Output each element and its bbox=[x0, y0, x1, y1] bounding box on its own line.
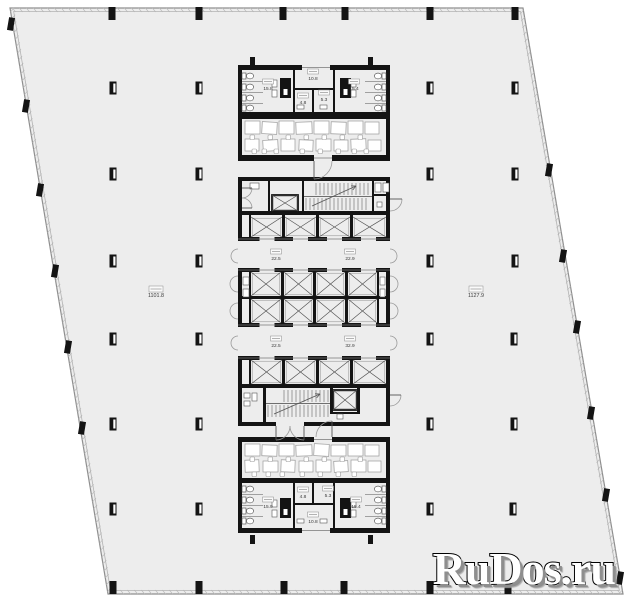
desk-icon bbox=[348, 121, 363, 134]
core-wall bbox=[238, 388, 242, 426]
toilet-icon bbox=[246, 518, 253, 524]
area-value: 32.9 bbox=[345, 343, 355, 349]
core-wall bbox=[386, 483, 390, 533]
area-value: 1101.8 bbox=[148, 293, 164, 299]
core-wall bbox=[350, 360, 353, 384]
desk-icon bbox=[296, 445, 312, 457]
toilet-icon bbox=[242, 518, 246, 524]
column bbox=[109, 7, 116, 20]
chair-icon bbox=[250, 135, 255, 140]
toilet-icon bbox=[242, 497, 246, 503]
fixture-icon bbox=[272, 90, 277, 97]
fixture-icon bbox=[252, 393, 257, 401]
chair-icon bbox=[336, 472, 341, 477]
desk-icon bbox=[296, 122, 312, 135]
core-wall bbox=[316, 215, 319, 237]
chair-icon bbox=[280, 472, 285, 477]
toilet-icon bbox=[382, 73, 386, 79]
core-wall bbox=[350, 215, 353, 237]
area-value: 22.9 bbox=[345, 256, 355, 262]
chair-icon bbox=[318, 149, 323, 154]
toilet-icon bbox=[246, 95, 253, 101]
toilet-icon bbox=[242, 508, 246, 514]
core-wall bbox=[293, 70, 295, 112]
desk-icon bbox=[245, 444, 260, 456]
core-wall bbox=[345, 272, 348, 323]
core-wall bbox=[238, 119, 242, 161]
chair-icon bbox=[358, 457, 363, 462]
core-wall bbox=[249, 360, 251, 384]
chair-icon bbox=[352, 472, 357, 477]
column bbox=[196, 581, 203, 594]
toilet-icon bbox=[242, 84, 246, 90]
column bbox=[110, 581, 117, 594]
column bbox=[196, 7, 203, 20]
core-wall bbox=[238, 384, 390, 388]
core-wall bbox=[302, 181, 304, 211]
toilet-icon bbox=[246, 105, 253, 111]
core-wall bbox=[295, 503, 333, 505]
desk-icon bbox=[331, 122, 346, 135]
fixture-icon bbox=[243, 289, 249, 297]
fixture-icon bbox=[272, 510, 277, 517]
area-value: 10.8 bbox=[308, 519, 318, 525]
core-wall bbox=[313, 272, 316, 323]
core-wall bbox=[312, 483, 314, 503]
fixture-icon bbox=[380, 277, 385, 285]
desk-icon bbox=[279, 444, 294, 456]
floor-plan-page: { "watermark": { "text": "RuDos.ru" }, "… bbox=[0, 0, 629, 600]
desk-icon bbox=[331, 445, 346, 456]
column bbox=[281, 581, 288, 594]
desk-icon bbox=[368, 461, 381, 472]
chair-icon bbox=[286, 457, 291, 462]
core-wall bbox=[238, 483, 242, 533]
toilet-icon bbox=[382, 518, 386, 524]
core-wall bbox=[238, 65, 242, 119]
toilet-icon bbox=[374, 497, 381, 503]
desk-icon bbox=[314, 444, 330, 457]
column bbox=[280, 7, 287, 20]
column bbox=[341, 581, 348, 594]
chair-icon bbox=[322, 135, 327, 140]
chair-icon bbox=[364, 149, 369, 154]
core-wall bbox=[263, 388, 266, 422]
toilet-icon bbox=[246, 497, 253, 503]
toilet-icon bbox=[242, 73, 246, 79]
column bbox=[342, 7, 349, 20]
toilet-icon bbox=[382, 95, 386, 101]
core-wall bbox=[330, 528, 390, 533]
core-wall bbox=[386, 388, 390, 426]
core-wall bbox=[238, 65, 302, 70]
core-wall bbox=[238, 356, 242, 388]
area-value: 22.5 bbox=[271, 343, 281, 349]
area-value: 15.4 bbox=[351, 504, 361, 510]
core-wall bbox=[281, 272, 284, 323]
area-value: 4.8 bbox=[300, 494, 307, 500]
desk-icon bbox=[365, 445, 379, 456]
area-label: 1127.9 bbox=[468, 286, 484, 299]
desk-icon bbox=[245, 121, 260, 134]
chair-icon bbox=[352, 149, 357, 154]
column bbox=[427, 7, 434, 20]
core-wall bbox=[386, 442, 390, 478]
fixture-icon bbox=[380, 289, 385, 297]
area-value: 15.9 bbox=[263, 504, 273, 510]
chair-icon bbox=[268, 135, 273, 140]
toilet-icon bbox=[246, 508, 253, 514]
chair-icon bbox=[252, 472, 257, 477]
floor-plan-svg: 10.815.84.85.315.422.522.922.532.91101.8… bbox=[0, 0, 629, 600]
chair-icon bbox=[274, 149, 279, 154]
core-wall bbox=[238, 211, 390, 215]
desk-icon bbox=[263, 461, 278, 472]
desk-icon bbox=[314, 121, 329, 134]
chair-icon bbox=[318, 472, 323, 477]
toilet-icon bbox=[246, 486, 253, 492]
fixture-icon bbox=[351, 510, 356, 517]
chair-icon bbox=[300, 472, 305, 477]
chair-icon bbox=[304, 457, 309, 462]
core-wall bbox=[238, 112, 390, 119]
core-wall bbox=[330, 412, 360, 414]
core-wall bbox=[238, 422, 276, 426]
area-value: 5.3 bbox=[321, 97, 328, 103]
desk-icon bbox=[262, 122, 278, 135]
desk-icon bbox=[351, 460, 366, 472]
chair-icon bbox=[252, 149, 257, 154]
toilet-icon bbox=[246, 73, 253, 79]
fixture-icon bbox=[383, 183, 389, 192]
toilet-icon bbox=[382, 497, 386, 503]
toilet-icon bbox=[374, 486, 381, 492]
core-wall bbox=[316, 360, 319, 384]
slab-outline bbox=[10, 8, 623, 594]
core-wall bbox=[238, 528, 302, 533]
core-wall bbox=[249, 272, 251, 323]
core-wall bbox=[333, 70, 335, 112]
fixture-icon bbox=[320, 105, 327, 109]
fixture-icon bbox=[244, 393, 250, 398]
fixture-icon bbox=[377, 202, 382, 207]
core-wall bbox=[330, 65, 390, 70]
core-wall bbox=[386, 268, 390, 327]
desk-icon bbox=[348, 444, 363, 456]
toilet-icon bbox=[242, 105, 246, 111]
core-wall bbox=[250, 535, 255, 544]
area-label: 1101.8 bbox=[148, 286, 164, 299]
core-wall bbox=[268, 181, 270, 211]
fixture-icon bbox=[375, 183, 381, 192]
core-wall bbox=[250, 57, 255, 66]
toilet-icon bbox=[374, 73, 381, 79]
core-wall bbox=[304, 422, 390, 426]
chair-icon bbox=[286, 135, 291, 140]
floor-plan-canvas: 10.815.84.85.315.422.522.922.532.91101.8… bbox=[0, 0, 629, 600]
fixture-icon bbox=[297, 519, 304, 523]
chair-icon bbox=[322, 457, 327, 462]
core-wall bbox=[386, 65, 390, 119]
core-wall bbox=[386, 119, 390, 161]
area-value: 22.5 bbox=[271, 256, 281, 262]
toilet-icon bbox=[382, 486, 386, 492]
toilet-icon bbox=[382, 105, 386, 111]
toilet-icon bbox=[382, 84, 386, 90]
toilet-icon bbox=[246, 84, 253, 90]
chair-icon bbox=[250, 457, 255, 462]
core-wall bbox=[249, 215, 251, 237]
core-wall bbox=[312, 90, 314, 112]
core-wall bbox=[238, 478, 390, 483]
chair-icon bbox=[340, 457, 345, 462]
chair-icon bbox=[336, 149, 341, 154]
desk-icon bbox=[262, 445, 277, 457]
toilet-icon bbox=[374, 518, 381, 524]
area-value: 15.4 bbox=[349, 86, 359, 92]
chair-icon bbox=[300, 149, 305, 154]
desk-icon bbox=[365, 122, 379, 134]
chair-icon bbox=[268, 457, 273, 462]
desk-icon bbox=[299, 461, 313, 472]
fixture-icon bbox=[320, 519, 327, 523]
core-wall bbox=[282, 360, 285, 384]
toilet-icon bbox=[382, 508, 386, 514]
toilet-icon bbox=[374, 508, 381, 514]
area-value: 5.3 bbox=[325, 493, 332, 499]
core-wall bbox=[238, 442, 242, 478]
core-wall bbox=[332, 437, 390, 442]
toilet-icon bbox=[242, 95, 246, 101]
watermark: RuDos.ru bbox=[433, 546, 615, 592]
fixture-icon bbox=[244, 401, 250, 406]
fixture-icon bbox=[337, 414, 343, 419]
core-wall bbox=[368, 535, 373, 544]
chair-icon bbox=[304, 135, 309, 140]
core-wall bbox=[386, 356, 390, 388]
core-wall bbox=[368, 57, 373, 66]
column bbox=[512, 7, 519, 20]
toilet-icon bbox=[374, 84, 381, 90]
desk-icon bbox=[279, 121, 294, 134]
core-wall bbox=[238, 181, 242, 215]
chair-icon bbox=[358, 135, 363, 140]
core-wall bbox=[295, 88, 333, 90]
chair-icon bbox=[262, 149, 267, 154]
chair-icon bbox=[266, 472, 271, 477]
desk-icon bbox=[281, 139, 295, 151]
core-wall bbox=[282, 215, 285, 237]
desk-icon bbox=[334, 461, 349, 473]
area-value: 10.8 bbox=[308, 76, 318, 82]
area-value: 15.8 bbox=[263, 86, 273, 92]
core-wall bbox=[238, 155, 314, 161]
chair-icon bbox=[340, 135, 345, 140]
area-value: 1127.9 bbox=[468, 293, 484, 299]
core-wall bbox=[377, 272, 379, 323]
core-wall bbox=[238, 268, 242, 327]
toilet-icon bbox=[374, 95, 381, 101]
core-wall bbox=[332, 155, 390, 161]
floor-outline-layer bbox=[10, 8, 623, 594]
toilet-icon bbox=[374, 105, 381, 111]
area-value: 4.8 bbox=[300, 100, 307, 106]
toilet-icon bbox=[242, 486, 246, 492]
fixture-icon bbox=[243, 277, 249, 285]
core-wall bbox=[293, 483, 295, 528]
core-wall bbox=[372, 194, 390, 196]
desk-icon bbox=[368, 140, 381, 151]
